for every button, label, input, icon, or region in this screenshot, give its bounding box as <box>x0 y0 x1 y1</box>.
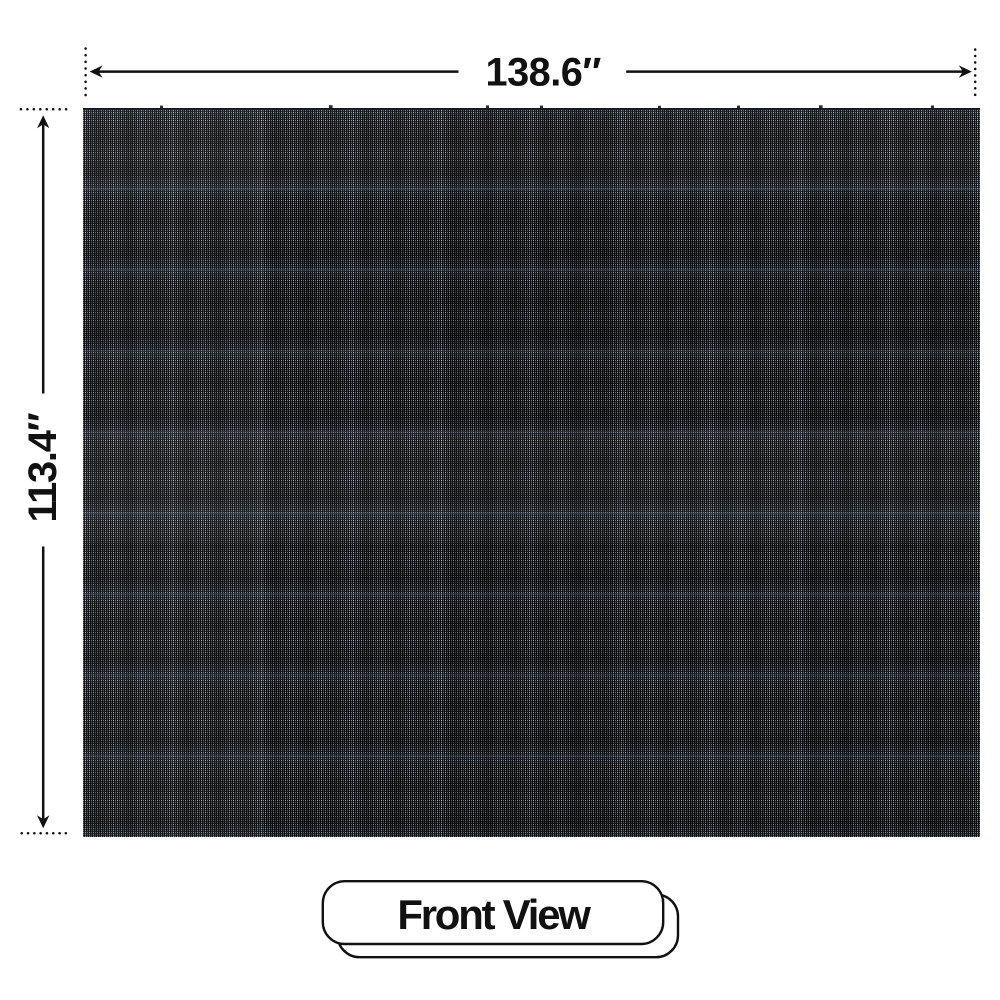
svg-text:113.4″: 113.4″ <box>21 412 65 522</box>
svg-text:Front View: Front View <box>397 891 591 938</box>
svg-text:138.6″: 138.6″ <box>486 51 602 95</box>
